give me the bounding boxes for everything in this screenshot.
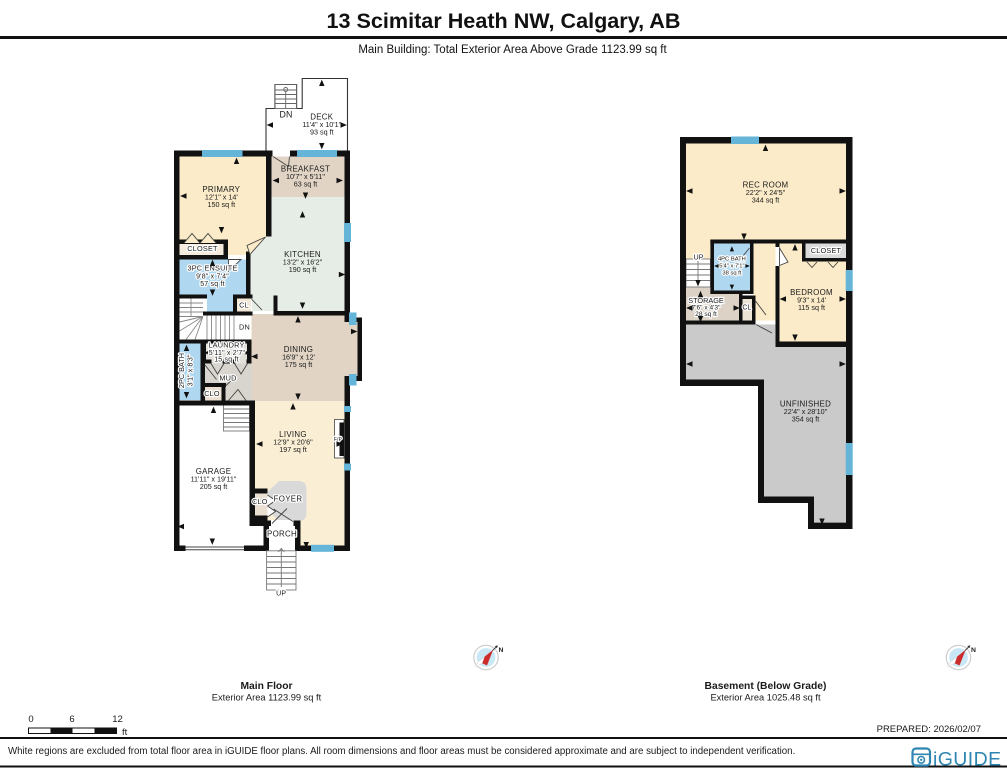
svg-text:STORAGE: STORAGE — [688, 296, 724, 305]
svg-text:4PC BATH: 4PC BATH — [718, 257, 746, 263]
svg-text:ft: ft — [122, 727, 128, 738]
svg-text:115 sq ft: 115 sq ft — [798, 303, 825, 312]
svg-text:93 sq ft: 93 sq ft — [310, 128, 334, 137]
svg-text:LAUNDRY: LAUNDRY — [208, 340, 244, 349]
svg-text:9'8" x 7'4": 9'8" x 7'4" — [196, 273, 229, 280]
svg-text:205 sq ft: 205 sq ft — [200, 482, 228, 491]
svg-text:N: N — [971, 647, 976, 654]
svg-text:175 sq ft: 175 sq ft — [285, 360, 313, 369]
svg-text:15 sq ft: 15 sq ft — [214, 356, 239, 363]
svg-text:PORCH: PORCH — [267, 530, 297, 539]
svg-text:Main Floor: Main Floor — [240, 681, 292, 692]
svg-text:344 sq ft: 344 sq ft — [752, 196, 780, 205]
svg-text:38 sq ft: 38 sq ft — [722, 271, 741, 277]
svg-text:Exterior Area 1025.48 sq ft: Exterior Area 1025.48 sq ft — [710, 693, 820, 703]
svg-text:CLOSET: CLOSET — [187, 244, 218, 253]
svg-text:FOYER: FOYER — [274, 495, 303, 504]
svg-text:CL: CL — [239, 301, 249, 310]
svg-text:63 sq ft: 63 sq ft — [294, 180, 318, 189]
svg-text:57 sq ft: 57 sq ft — [200, 281, 225, 288]
svg-text:CLOSET: CLOSET — [811, 246, 842, 255]
svg-text:PREPARED: 2026/02/07: PREPARED: 2026/02/07 — [877, 724, 981, 735]
svg-text:190 sq ft: 190 sq ft — [289, 265, 317, 274]
svg-text:6: 6 — [69, 714, 74, 725]
svg-text:CLO: CLO — [204, 389, 220, 398]
svg-text:0: 0 — [28, 714, 33, 725]
svg-text:N: N — [499, 647, 504, 654]
svg-text:CLO: CLO — [252, 497, 268, 506]
svg-text:12: 12 — [112, 714, 123, 725]
svg-text:DN: DN — [239, 323, 250, 332]
svg-text:5'4" x 7'1": 5'4" x 7'1" — [719, 264, 744, 270]
svg-text:White regions are excluded fro: White regions are excluded from total fl… — [8, 746, 795, 757]
svg-text:CL: CL — [742, 305, 751, 312]
svg-text:UP: UP — [694, 252, 704, 261]
svg-text:iGUIDE: iGUIDE — [933, 749, 1002, 768]
svg-text:Exterior Area 1123.99 sq ft: Exterior Area 1123.99 sq ft — [212, 693, 322, 703]
svg-text:150 sq ft: 150 sq ft — [208, 200, 236, 209]
svg-text:UP: UP — [276, 591, 286, 598]
svg-text:Basement (Below Grade): Basement (Below Grade) — [705, 681, 827, 692]
svg-text:197 sq ft: 197 sq ft — [279, 445, 307, 454]
svg-text:MUD: MUD — [219, 374, 236, 383]
svg-text:354 sq ft: 354 sq ft — [792, 415, 820, 424]
svg-text:DN: DN — [279, 110, 292, 120]
svg-text:3'1" x 8'3": 3'1" x 8'3" — [186, 354, 195, 386]
